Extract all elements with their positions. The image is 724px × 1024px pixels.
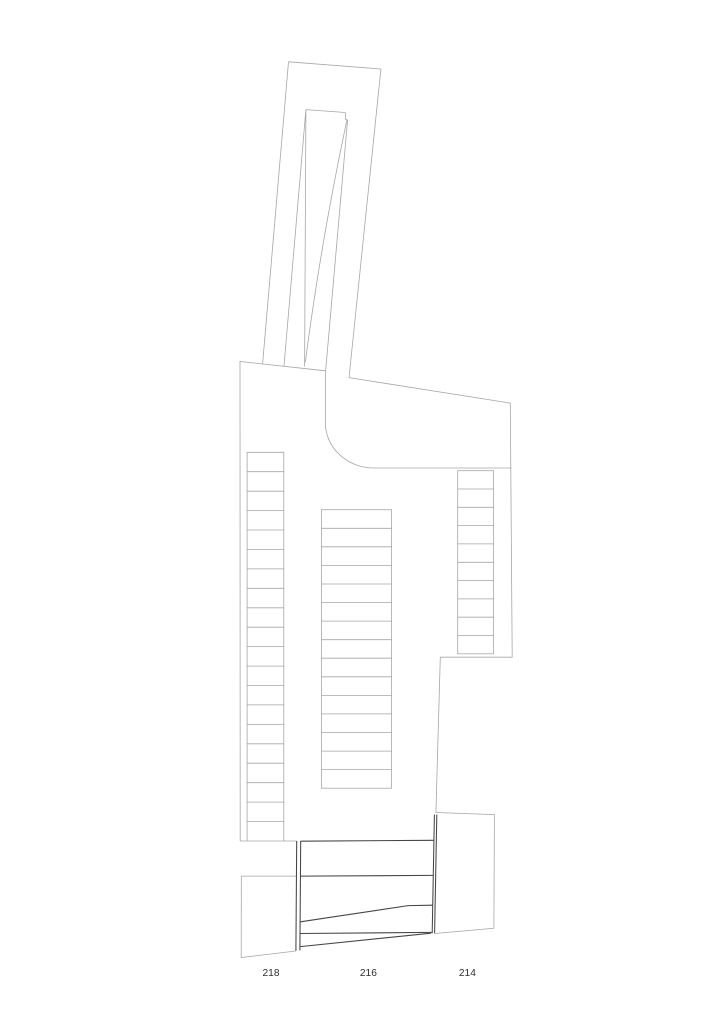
svg-text:216: 216 — [360, 968, 377, 979]
svg-text:214: 214 — [459, 968, 476, 979]
svg-text:218: 218 — [263, 968, 280, 979]
